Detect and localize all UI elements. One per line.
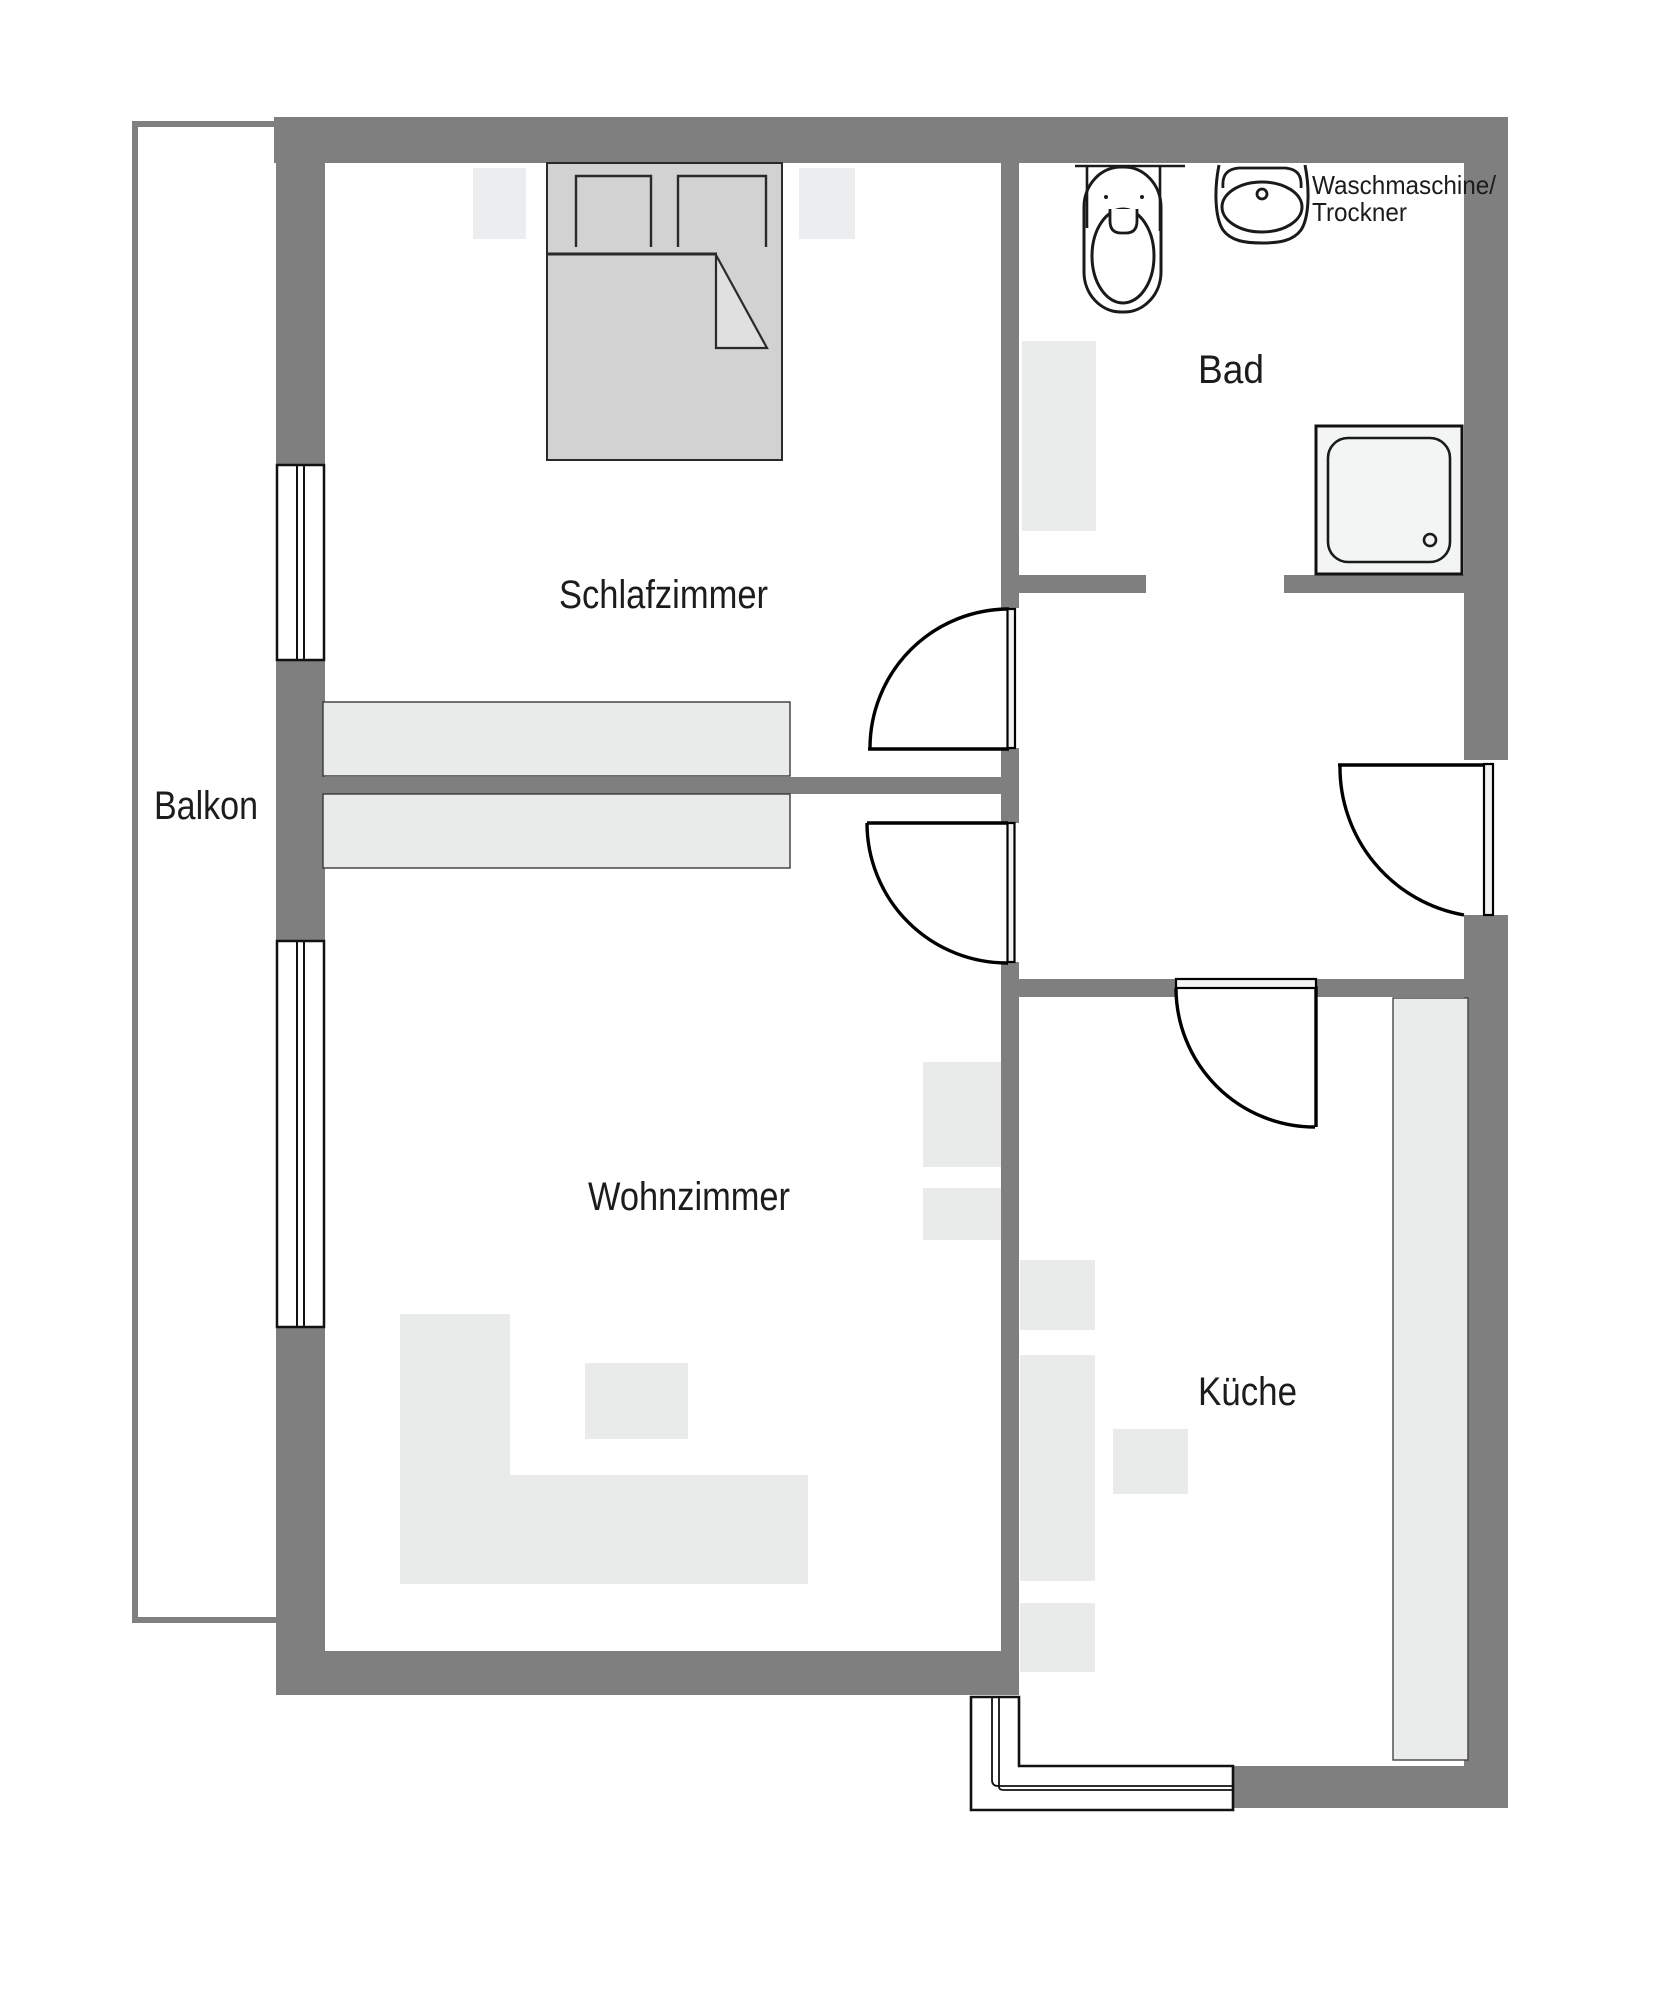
svg-text:Schlafzimmer: Schlafzimmer <box>559 573 768 617</box>
svg-text:Küche: Küche <box>1198 1370 1297 1414</box>
svg-text:Balkon: Balkon <box>154 784 258 828</box>
svg-text:Wohnzimmer: Wohnzimmer <box>588 1175 790 1219</box>
svg-text:Bad: Bad <box>1198 348 1264 392</box>
svg-text:Waschmaschine/: Waschmaschine/ <box>1312 170 1497 200</box>
svg-text:Trockner: Trockner <box>1312 197 1407 227</box>
